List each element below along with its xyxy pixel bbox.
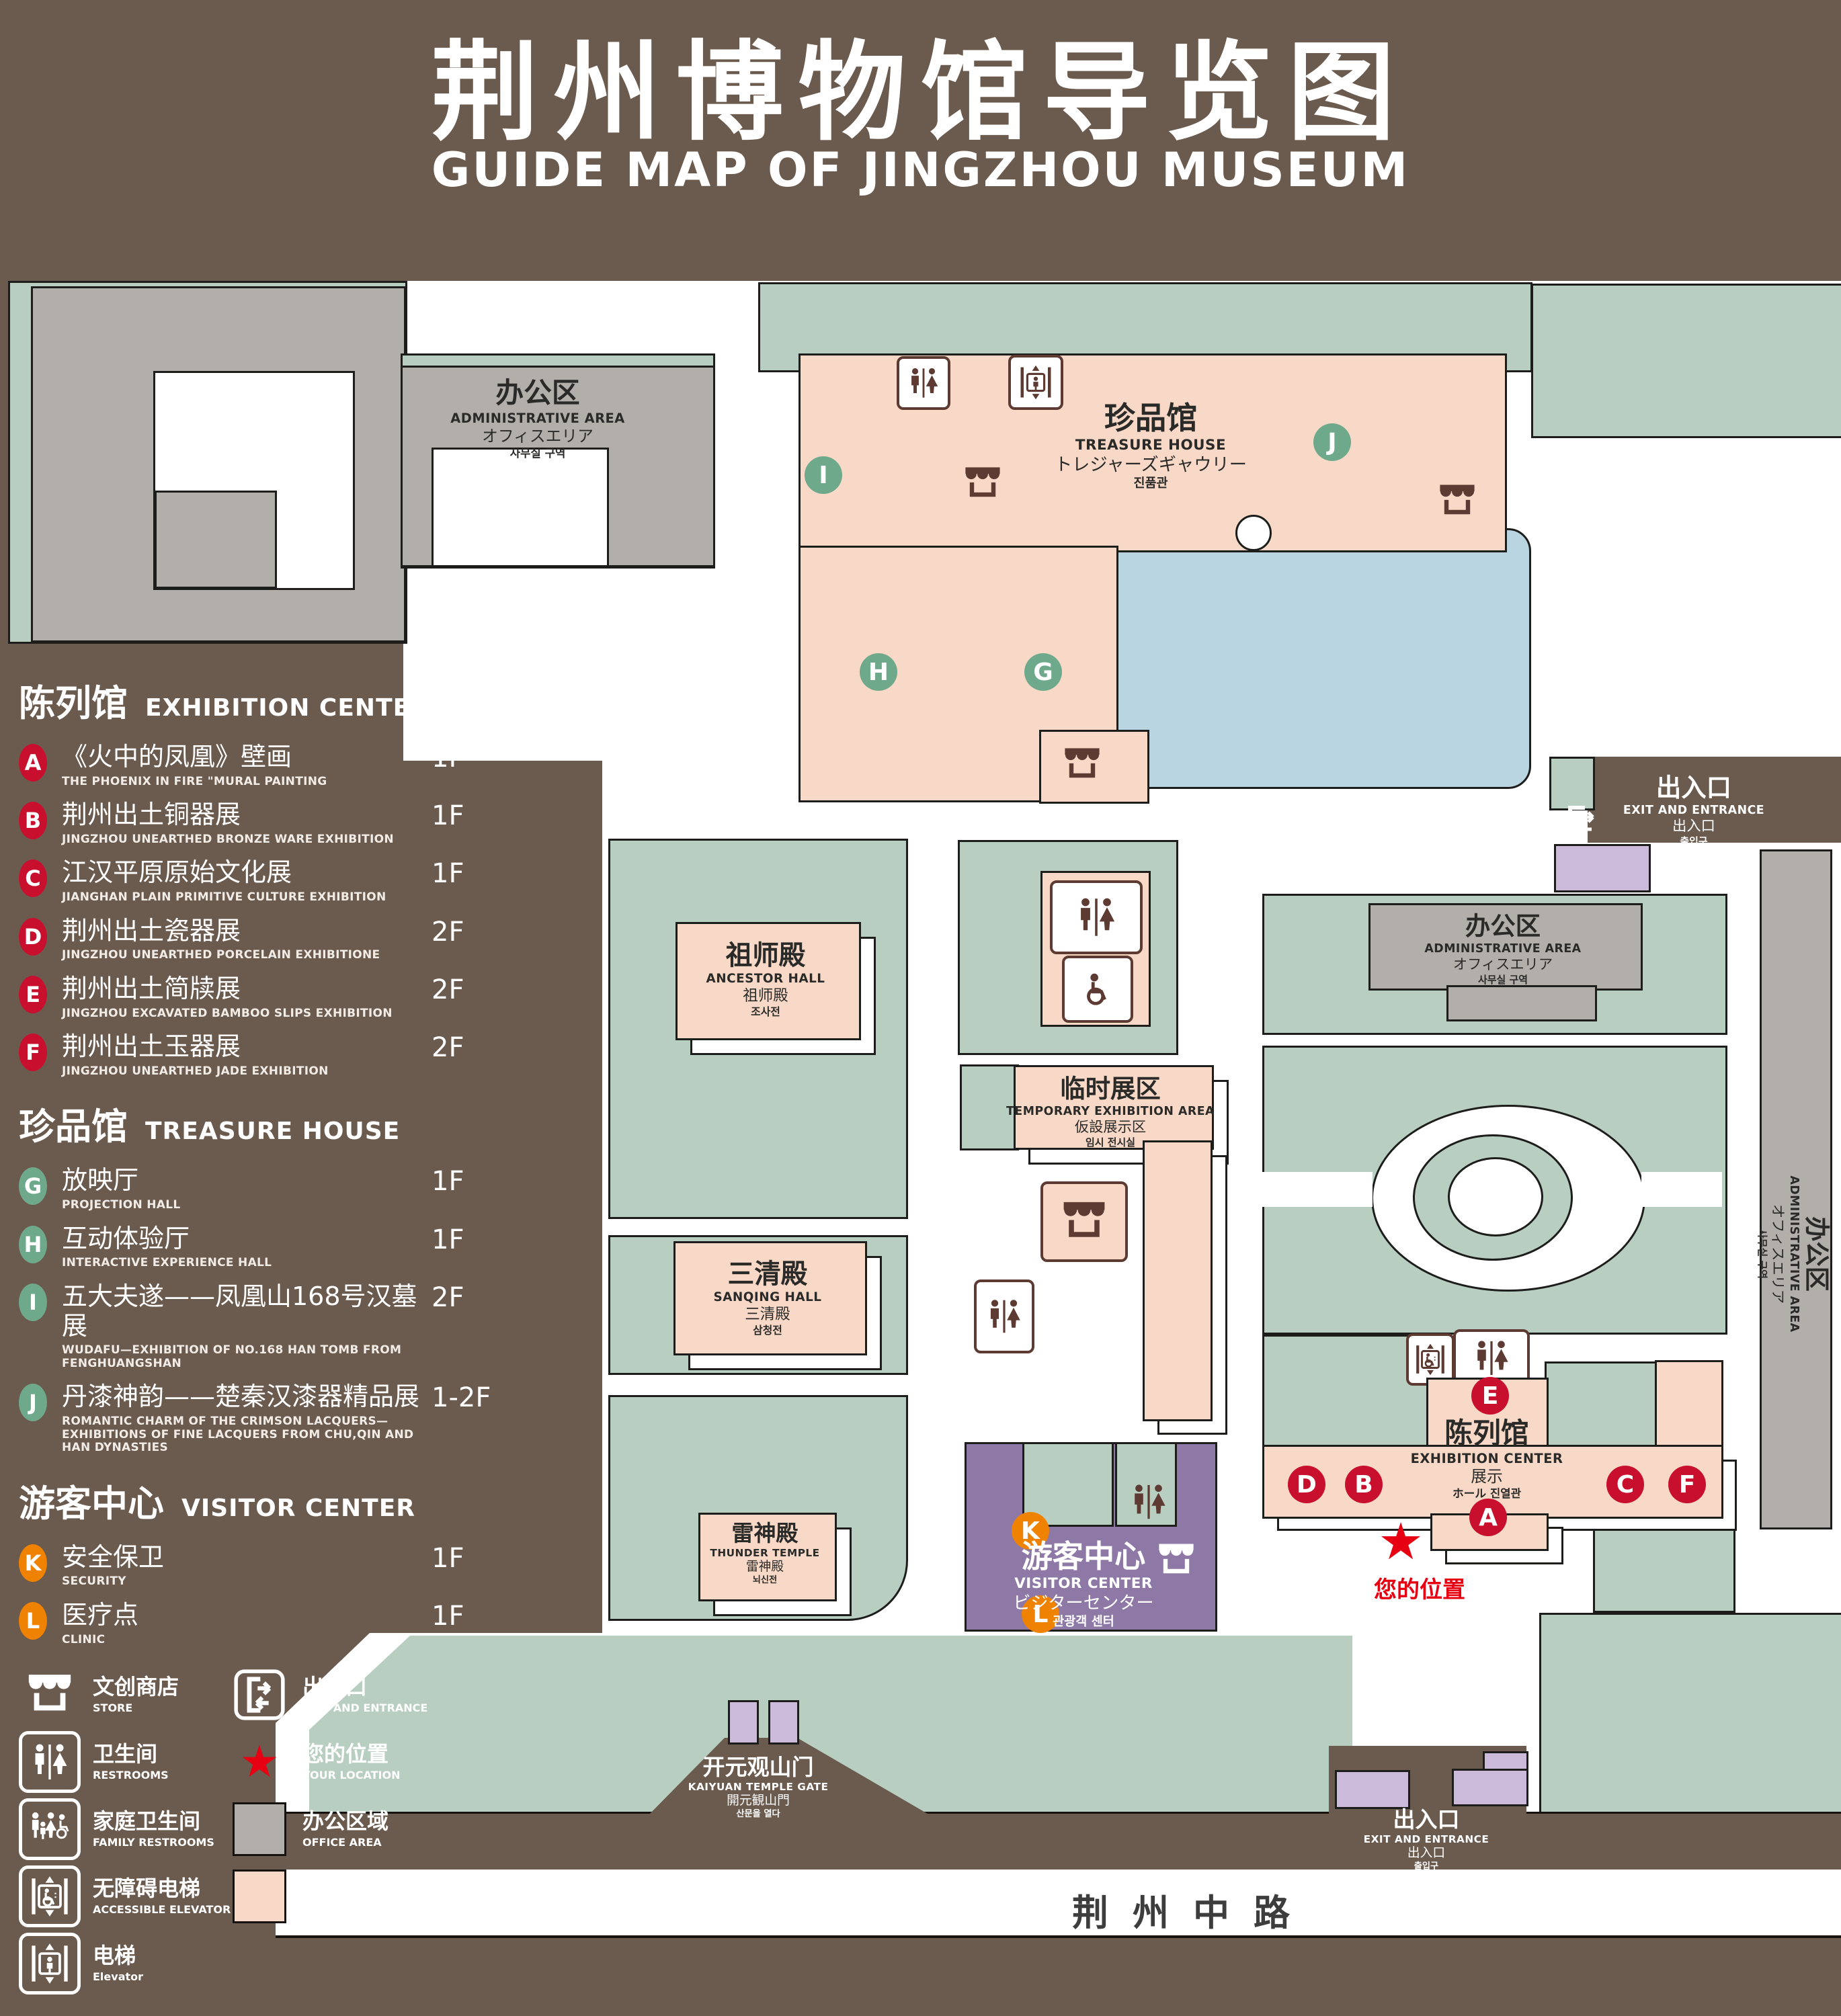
label-admin-top-zh: 办公区 xyxy=(450,376,624,411)
legend-symbol-elevator: 电梯Elevator xyxy=(19,1935,231,1992)
label-exhibition-jp: 展示 xyxy=(1411,1467,1563,1486)
your-location-star-icon: ★ xyxy=(1378,1516,1424,1567)
label-sanqing-en: SANQING HALL xyxy=(713,1290,821,1305)
item-f-en: JINGZHOU UNEARTHED JADE EXHIBITION xyxy=(62,1065,427,1079)
building-admin-mid-tab xyxy=(1446,985,1597,1021)
label-exhibition-kr: ホール 진열관 xyxy=(1411,1486,1563,1500)
label-exit-tr-en: EXIT AND ENTRANCE xyxy=(1623,804,1764,818)
label-kaiyuan-gate: 开元观山门 KAIYUAN TEMPLE GATE 開元観山門 산문을 열다 xyxy=(688,1754,829,1820)
legend-symbol-store: 文创商店STORE xyxy=(19,1667,231,1723)
legend-symbols-col-1: 文创商店STORE 卫生间RESTROOMS 家庭卫生间FAMILY RESTR… xyxy=(19,1667,231,2003)
restroom-icon xyxy=(974,1279,1034,1353)
label-treasure-kr: 진품관 xyxy=(1055,476,1247,492)
marker-e: E xyxy=(1471,1377,1509,1415)
restroom-icon xyxy=(897,356,950,410)
marker-a: A xyxy=(1469,1499,1507,1536)
roadside-band xyxy=(276,1812,1841,1876)
item-f-floor: 2F xyxy=(427,1032,493,1063)
label-exhibition-zh: 陈列馆 xyxy=(1411,1417,1563,1451)
restroom-icon xyxy=(1129,1482,1168,1521)
legend-item-c: C 江汉平原原始文化展JIANGHAN PLAIN PRIMITIVE CULT… xyxy=(19,858,493,904)
badge-d: D xyxy=(19,918,47,956)
label-gate-zh: 开元观山门 xyxy=(688,1754,829,1781)
badge-h: H xyxy=(19,1226,47,1263)
page-subtitle: GUIDE MAP OF JINGZHOU MUSEUM xyxy=(0,142,1841,198)
legend-symbol-exit: 出入口EXIT AND ENTRANCE xyxy=(229,1667,427,1723)
marker-d: D xyxy=(1288,1466,1325,1503)
label-exit-tr-jp: 出入口 xyxy=(1623,818,1764,835)
item-h-zh: 互动体验厅 xyxy=(62,1224,427,1254)
label-admin-mid-en: ADMINISTRATIVE AREA xyxy=(1424,942,1581,956)
label-visitor-center: 游客中心 VISITOR CENTER ビジターセンター 관광객 센터 xyxy=(1013,1538,1153,1630)
item-k-en: SECURITY xyxy=(62,1575,427,1589)
legend-item-b: B 荆州出土铜器展JINGZHOU UNEARTHED BRONZE WARE … xyxy=(19,800,493,846)
restroom-label-zh: 卫生间 xyxy=(93,1742,169,1766)
label-exit-tr-kr: 출입구 xyxy=(1623,835,1764,847)
label-admin-top-en: ADMINISTRATIVE AREA xyxy=(450,411,624,427)
restroom-icon xyxy=(19,1731,81,1793)
item-d-zh: 荆州出土瓷器展 xyxy=(62,917,427,946)
green-bottom-right xyxy=(1539,1613,1841,1845)
garden-island-center xyxy=(1448,1157,1543,1236)
label-exhibition-en: EXHIBITION CENTER xyxy=(1411,1451,1563,1467)
label-admin-mid: 办公区 ADMINISTRATIVE AREA オフィスエリア 사무실 구역 xyxy=(1424,911,1581,986)
page-title: 荆州博物馆导览图 xyxy=(0,5,1841,161)
label-thunder-kr: 뇌신전 xyxy=(710,1575,819,1586)
label-admin-mid-jp: オフィスエリア xyxy=(1424,956,1581,974)
office-label-zh: 办公区域 xyxy=(302,1810,388,1833)
legend-tre-title-en: TREASURE HOUSE xyxy=(145,1118,400,1145)
legend-item-f: F 荆州出土玉器展JINGZHOU UNEARTHED JADE EXHIBIT… xyxy=(19,1032,493,1078)
item-a-en: THE PHOENIX IN FIRE "MURAL PAINTING xyxy=(62,775,427,789)
badge-f: F xyxy=(19,1034,47,1071)
label-admin-right-jp: オフィスエリア xyxy=(1768,1175,1787,1332)
label-gate-jp: 開元観山門 xyxy=(688,1794,829,1809)
family-label-zh: 家庭卫生间 xyxy=(93,1810,214,1833)
road-label: 荆州中路 xyxy=(1072,1883,1314,1936)
marker-f: F xyxy=(1668,1466,1706,1503)
exit-label-zh: 出入口 xyxy=(302,1675,427,1699)
legend-item-j: J 丹漆神韵——楚秦汉漆器精品展ROMANTIC CHARM OF THE CR… xyxy=(19,1382,493,1454)
item-c-en: JIANGHAN PLAIN PRIMITIVE CULTURE EXHIBIT… xyxy=(62,891,427,905)
label-admin-top: 办公区 ADMINISTRATIVE AREA オフィスエリア 사무실 구역 xyxy=(450,376,624,460)
marker-j: J xyxy=(1313,423,1351,461)
label-exit-b-kr: 출입구 xyxy=(1364,1861,1489,1872)
legend-section-treasure-header: 珍品馆 TREASURE HOUSE xyxy=(19,1097,493,1150)
item-e-floor: 2F xyxy=(427,974,493,1005)
item-l-en: CLINIC xyxy=(62,1634,427,1647)
green-exh-south xyxy=(1593,1524,1735,1613)
legend-vis-title-zh: 游客中心 xyxy=(19,1474,164,1527)
elevator-label-zh: 电梯 xyxy=(93,1944,143,1968)
badge-i: I xyxy=(19,1284,47,1321)
office-area-swatch xyxy=(233,1802,286,1856)
item-b-en: JINGZHOU UNEARTHED BRONZE WARE EXHIBITIO… xyxy=(62,833,427,847)
label-gate-kr: 산문을 열다 xyxy=(688,1809,829,1820)
badge-l: L xyxy=(19,1602,47,1640)
item-k-floor: 1F xyxy=(427,1543,493,1574)
item-g-en: PROJECTION HALL xyxy=(62,1199,427,1212)
label-exit-b-en: EXIT AND ENTRANCE xyxy=(1364,1833,1489,1846)
label-ancestor-kr: 조사전 xyxy=(706,1005,825,1018)
label-exit-b-zh: 出入口 xyxy=(1364,1806,1489,1833)
label-exit-top-right: 出入口 EXIT AND ENTRANCE 出入口 출입구 xyxy=(1623,773,1764,847)
item-d-floor: 2F xyxy=(427,917,493,948)
store-label-zh: 文创商店 xyxy=(93,1675,179,1699)
label-thunder-jp: 雷神殿 xyxy=(710,1560,819,1575)
building-admin-inner xyxy=(155,491,277,589)
legend-symbol-accessible-elevator: 无障碍电梯ACCESSIBLE ELEVATOR xyxy=(19,1868,231,1925)
building-light-purple-top-right xyxy=(1554,844,1651,892)
accel-label-zh: 无障碍电梯 xyxy=(93,1877,231,1900)
legend-symbol-office-area: 办公区域OFFICE AREA xyxy=(229,1801,427,1857)
legend-tre-title-zh: 珍品馆 xyxy=(19,1097,128,1150)
building-light-purple-exit-west xyxy=(1335,1770,1410,1809)
store-label-en: STORE xyxy=(93,1702,179,1714)
item-a-zh: 《火中的凤凰》壁画 xyxy=(62,743,427,772)
item-f-zh: 荆州出土玉器展 xyxy=(62,1032,427,1062)
exit-icon xyxy=(229,1667,290,1722)
label-admin-mid-zh: 办公区 xyxy=(1424,911,1581,942)
label-exit-tr-zh: 出入口 xyxy=(1623,773,1764,804)
marker-c: C xyxy=(1606,1466,1644,1503)
store-icon xyxy=(1061,743,1104,786)
badge-j: J xyxy=(19,1384,47,1421)
legend-symbols: 文创商店STORE 卫生间RESTROOMS 家庭卫生间FAMILY RESTR… xyxy=(19,1667,493,2016)
legend-item-i: I 五大夫遂——凤凰山168号汉墓展WUDAFU—EXHIBITION OF N… xyxy=(19,1282,493,1370)
legend-symbol-restroom: 卫生间RESTROOMS xyxy=(19,1734,231,1790)
display-area-swatch xyxy=(233,1870,286,1923)
deco-circle xyxy=(1235,515,1272,551)
label-thunder-en: THUNDER TEMPLE xyxy=(710,1547,819,1560)
label-exit-b-jp: 出入口 xyxy=(1364,1846,1489,1861)
badge-c: C xyxy=(19,859,47,897)
label-temporary-kr: 임시 전시실 xyxy=(1006,1136,1215,1148)
item-d-en: JINGZHOU UNEARTHED PORCELAIN EXHIBITIONE xyxy=(62,949,427,962)
label-visitor-jp: ビジターセンター xyxy=(1013,1593,1153,1614)
green-top-right xyxy=(1531,284,1841,438)
label-treasure-zh: 珍品馆 xyxy=(1055,399,1247,437)
legend-symbol-display-area: 展示区域DISPLAY AREA xyxy=(229,1868,427,1925)
legend-exh-title-zh: 陈列馆 xyxy=(19,673,128,726)
gate-pillar-east xyxy=(768,1700,799,1745)
label-temporary-jp: 仮設展示区 xyxy=(1006,1119,1215,1136)
legend-symbol-location: ★ 您的位置YOUR LOCATION xyxy=(229,1734,427,1790)
family-restroom-icon xyxy=(19,1798,81,1860)
badge-g: G xyxy=(19,1167,47,1205)
restroom-icon xyxy=(1050,880,1143,954)
water-pond xyxy=(1116,528,1531,789)
item-l-zh: 医疗点 xyxy=(62,1601,427,1630)
label-admin-right-kr: 사무실 구역 xyxy=(1756,1175,1768,1332)
legend-exh-title-en: EXHIBITION CENTER xyxy=(145,694,429,722)
legend-symbols-col-2: 出入口EXIT AND ENTRANCE ★ 您的位置YOUR LOCATION… xyxy=(229,1667,427,1935)
exit-label-en: EXIT AND ENTRANCE xyxy=(302,1702,427,1714)
label-exit-bottom: 出入口 EXIT AND ENTRANCE 出入口 출입구 xyxy=(1364,1806,1489,1872)
legend-item-h: H 互动体验厅INTERACTIVE EXPERIENCE HALL 1F xyxy=(19,1224,493,1270)
store-icon xyxy=(1155,1539,1198,1582)
display-label-en: DISPLAY AREA xyxy=(302,1904,389,1916)
badge-b: B xyxy=(19,802,47,839)
item-e-zh: 荆州出土简牍展 xyxy=(62,974,427,1004)
item-j-floor: 1-2F xyxy=(427,1382,493,1413)
label-admin-right-zh: 办公区 xyxy=(1801,1175,1832,1332)
legend-panel: 陈列馆 EXHIBITION CENTER A 《火中的凤凰》壁画THE PHO… xyxy=(19,673,493,2016)
label-ancestor-en: ANCESTOR HALL xyxy=(706,972,825,986)
garden-path-west xyxy=(1262,1172,1373,1207)
item-i-zh: 五大夫遂——凤凰山168号汉墓展 xyxy=(62,1282,427,1341)
legend-item-g: G 放映厅PROJECTION HALL 1F xyxy=(19,1166,493,1212)
item-i-en: WUDAFU—EXHIBITION OF NO.168 HAN TOMB FRO… xyxy=(62,1344,427,1370)
item-c-zh: 江汉平原原始文化展 xyxy=(62,858,427,888)
label-visitor-en: VISITOR CENTER xyxy=(1013,1575,1153,1593)
label-sanqing-jp: 三清殿 xyxy=(713,1306,821,1324)
office-label-en: OFFICE AREA xyxy=(302,1837,388,1849)
label-admin-top-jp: オフィスエリア xyxy=(450,427,624,446)
label-ancestor-jp: 祖师殿 xyxy=(706,987,825,1005)
item-i-floor: 2F xyxy=(427,1282,493,1313)
location-label-zh: 您的位置 xyxy=(302,1742,400,1766)
store-icon xyxy=(19,1669,81,1721)
road xyxy=(276,1870,1841,1938)
label-sanqing-kr: 삼청전 xyxy=(713,1324,821,1337)
legend-item-l: L 医疗点CLINIC 1F xyxy=(19,1601,493,1646)
marker-h: H xyxy=(860,653,897,691)
courtyard-admin-bar xyxy=(432,448,609,567)
your-location-star-icon: ★ xyxy=(239,1740,279,1784)
badge-k: K xyxy=(19,1544,47,1582)
building-temporary-v xyxy=(1143,1140,1213,1421)
label-ancestor-zh: 祖师殿 xyxy=(706,939,825,972)
label-treasure-en: TREASURE HOUSE xyxy=(1055,437,1247,454)
item-c-floor: 1F xyxy=(427,858,493,889)
legend-section-exhibition-header: 陈列馆 EXHIBITION CENTER xyxy=(19,673,493,726)
item-g-zh: 放映厅 xyxy=(62,1166,427,1195)
label-thunder-temple: 雷神殿 THUNDER TEMPLE 雷神殿 뇌신전 xyxy=(710,1520,819,1586)
badge-e: E xyxy=(19,976,47,1013)
restroom-label-en: RESTROOMS xyxy=(93,1769,169,1781)
label-sanqing-zh: 三清殿 xyxy=(713,1258,821,1290)
item-j-en: ROMANTIC CHARM OF THE CRIMSON LACQUERS—E… xyxy=(62,1415,427,1455)
garden-path-east xyxy=(1641,1172,1722,1207)
label-admin-right: 办公区 ADMINISTRATIVE AREA オフィスエリア 사무실 구역 xyxy=(1756,1175,1832,1332)
label-gate-en: KAIYUAN TEMPLE GATE xyxy=(688,1781,829,1794)
badge-a: A xyxy=(19,744,47,782)
elevator-icon xyxy=(19,1933,81,1994)
item-b-floor: 1F xyxy=(427,800,493,831)
legend-vis-title-en: VISITOR CENTER xyxy=(181,1495,415,1522)
location-label-en: YOUR LOCATION xyxy=(302,1769,400,1781)
building-light-purple-exit-east xyxy=(1452,1769,1528,1806)
store-icon xyxy=(961,462,1004,505)
item-j-zh: 丹漆神韵——楚秦汉漆器精品展 xyxy=(62,1382,427,1412)
label-temporary-area: 临时展区 TEMPORARY EXHIBITION AREA 仮設展示区 임시 … xyxy=(1006,1074,1215,1148)
marker-i: I xyxy=(805,456,842,494)
label-exhibition-center: 陈列馆 EXHIBITION CENTER 展示 ホール 진열관 xyxy=(1411,1417,1563,1500)
label-visitor-zh: 游客中心 xyxy=(1013,1538,1153,1575)
your-location-label: 您的位置 xyxy=(1374,1571,1465,1604)
label-admin-mid-kr: 사무실 구역 xyxy=(1424,974,1581,986)
store-icon xyxy=(1040,1181,1128,1262)
label-temporary-zh: 临时展区 xyxy=(1006,1074,1215,1105)
legend-symbol-family-restroom: 家庭卫生间FAMILY RESTROOMS xyxy=(19,1801,231,1857)
legend-item-d: D 荆州出土瓷器展JINGZHOU UNEARTHED PORCELAIN EX… xyxy=(19,917,493,962)
item-e-en: JINGZHOU EXCAVATED BAMBOO SLIPS EXHIBITI… xyxy=(62,1007,427,1021)
label-thunder-zh: 雷神殿 xyxy=(710,1520,819,1547)
item-b-zh: 荆州出土铜器展 xyxy=(62,800,427,830)
label-admin-right-en: ADMINISTRATIVE AREA xyxy=(1786,1175,1801,1332)
gate-pillar-west xyxy=(728,1700,759,1745)
label-sanqing-hall: 三清殿 SANQING HALL 三清殿 삼청전 xyxy=(713,1258,821,1337)
item-h-floor: 1F xyxy=(427,1224,493,1255)
item-k-zh: 安全保卫 xyxy=(62,1543,427,1572)
label-temporary-en: TEMPORARY EXHIBITION AREA xyxy=(1006,1105,1215,1119)
legend-item-e: E 荆州出土简牍展JINGZHOU EXCAVATED BAMBOO SLIPS… xyxy=(19,974,493,1020)
display-label-zh: 展示区域 xyxy=(302,1877,389,1900)
store-icon xyxy=(1436,480,1479,523)
item-h-en: INTERACTIVE EXPERIENCE HALL xyxy=(62,1257,427,1270)
building-exhibition-right-tower xyxy=(1655,1360,1723,1452)
accessible-elevator-icon xyxy=(19,1865,81,1927)
accessible-icon xyxy=(1062,956,1133,1023)
marker-g: G xyxy=(1024,653,1062,691)
item-l-floor: 1F xyxy=(427,1601,493,1632)
legend-item-k: K 安全保卫SECURITY 1F xyxy=(19,1543,493,1589)
label-ancestor-hall: 祖师殿 ANCESTOR HALL 祖师殿 조사전 xyxy=(706,939,825,1018)
legend-section-visitor-header: 游客中心 VISITOR CENTER xyxy=(19,1474,493,1527)
label-visitor-kr: 관광객 센터 xyxy=(1013,1615,1153,1630)
elevator-label-en: Elevator xyxy=(93,1971,143,1983)
exit-icon xyxy=(1562,802,1602,843)
label-treasure-house: 珍品馆 TREASURE HOUSE トレジャーズギャウリー 진품관 xyxy=(1055,399,1247,491)
family-label-en: FAMILY RESTROOMS xyxy=(93,1837,214,1849)
accel-label-en: ACCESSIBLE ELEVATOR xyxy=(93,1904,231,1916)
marker-b: B xyxy=(1345,1466,1383,1503)
label-treasure-jp: トレジャーズギャウリー xyxy=(1055,454,1247,476)
label-admin-right-wrap: 办公区 ADMINISTRATIVE AREA オフィスエリア 사무실 구역 xyxy=(1760,1120,1828,1388)
item-g-floor: 1F xyxy=(427,1166,493,1197)
item-a-floor: 1F xyxy=(427,743,493,773)
label-admin-top-kr: 사무실 구역 xyxy=(450,446,624,460)
legend-item-a: A 《火中的凤凰》壁画THE PHOENIX IN FIRE "MURAL PA… xyxy=(19,743,493,788)
